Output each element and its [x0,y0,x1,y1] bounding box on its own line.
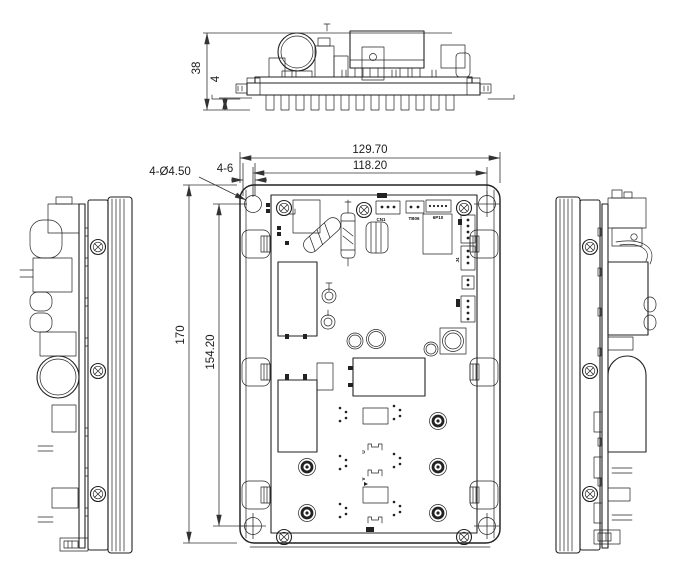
terminal-left-ribs [238,86,242,91]
pin-circles [321,283,336,329]
screw-top-left [277,201,292,216]
label-v: V [361,477,366,480]
component-rect-3 [317,363,333,390]
dim-text-154: 154.20 [205,334,217,369]
dim-text-118: 118.20 [353,160,387,172]
heatsink-fin-lines [112,199,124,551]
side-component-4 [52,405,76,432]
component-tower [315,46,334,77]
label-6p10: 6P10 [433,215,444,220]
standoff [430,505,447,522]
label-j4: J4 [455,257,460,263]
mount-hole-bottom-left [240,513,266,539]
frame-inner-walls [246,190,494,538]
label-tb06: TB06 [408,216,420,221]
component-rect-4 [363,408,388,424]
right-edge-connectors [456,215,475,322]
component-block [269,58,285,77]
screw-bottom-left [277,530,292,545]
right-side-view [556,190,656,553]
connector-tb06 [406,201,424,213]
dimension-annotations: 38 4 129.70 118.20 170 154.20 4-Ø4.50 4-… [149,33,500,543]
pad-dots [393,405,402,421]
ext-lines-38 [203,33,452,110]
pad-dots [339,455,348,471]
small-cap [456,53,470,77]
side-component-2 [608,337,633,350]
plate-screw [91,364,106,379]
callout-slot-text: 4-6 [217,163,234,175]
side-component-5 [52,488,78,508]
side-block-large [608,262,648,335]
capacitor-small [347,333,363,349]
label-u: U [361,450,366,453]
standoff [299,459,316,476]
component-leads [292,70,436,77]
fuse-diagonal [301,215,344,256]
left-side-view [20,197,132,553]
side-component [608,198,646,228]
relay-left [278,262,317,336]
screw-top-mid [357,203,372,218]
pcb-edge-side [602,204,608,548]
lead-wire [324,24,330,31]
side-bump [30,313,52,332]
baseplate [247,83,480,95]
component-rect-2 [423,214,452,254]
heatsink-fins [266,95,454,110]
plate-screw [583,487,598,502]
side-capacitor-dome [608,356,646,452]
terminal-right [480,84,491,93]
pad-dots [339,503,348,519]
mount-hole-bottom-right [474,513,500,539]
capacitor-profile [278,33,316,71]
side-component-2 [33,258,72,292]
baseplate-end-right [467,78,480,95]
component-rect-5 [363,487,388,503]
side-pins [38,517,53,522]
engineering-drawing: 38 4 129.70 118.20 170 154.20 4-Ø4.50 4-… [0,0,686,580]
pad-dots [339,407,348,423]
label-block-2 [366,527,374,532]
dim-text-38: 38 [191,62,203,75]
heatsink-fin-lines [560,199,572,551]
striped-cylinder [366,222,388,253]
component-tower-top [318,38,330,46]
mount-hole-top-right [474,191,500,217]
side-bump [644,315,656,330]
jumper-u [368,444,382,450]
side-component [48,204,79,233]
transformer-block [350,31,424,68]
side-capacitor-bump [30,220,62,258]
v-arrow-mark [364,482,368,486]
capacitor-square [440,328,466,354]
fuse-vertical-detail [341,200,355,266]
dim-text-4: 4 [210,75,222,82]
front-view: CN1 TB06 6P10 J4 [240,185,500,547]
side-bump [644,297,656,312]
dim-text-129: 129.70 [352,144,387,156]
jumper-w [368,517,382,523]
capacitor-profile-inner [281,36,313,68]
screw-top-right [457,201,472,216]
side-pins [20,270,33,277]
jumper-v [368,470,382,476]
plate-screw [583,240,598,255]
side-clips [242,230,498,509]
standoff [299,505,316,522]
side-component-cap [56,197,72,204]
pcb-outline [271,195,477,533]
relay-left-lower [278,380,317,452]
capacitor-small [367,330,386,349]
callout-hole-leader [199,177,246,200]
mount-hole-top-left [245,196,262,213]
to220-hole [370,54,377,61]
component-block-3 [441,45,465,68]
component-rect [293,200,320,233]
pad-dots [393,453,402,469]
side-component-3 [40,332,76,356]
capacitor-base [282,71,312,77]
label-block [377,193,387,198]
side-bump [30,292,52,311]
label-cn1: CN1 [376,217,385,222]
mount-tails [212,95,514,99]
cylinder-stripes [371,222,381,253]
callout-hole-text: 4-Ø4.50 [149,166,191,178]
top-profile-view [212,24,514,110]
standoff [430,459,447,476]
toroid-wires [616,241,652,264]
plate-screw [91,240,106,255]
to220-tab [362,47,384,80]
standoff [430,413,447,430]
side-pins [38,446,53,451]
terminal-right-ribs [484,86,488,91]
baseplate-end-left [247,78,260,95]
pcb-edge-side [79,204,85,548]
plate-screw [91,487,106,502]
dim-text-170: 170 [175,325,187,344]
side-capacitor-large [37,356,79,398]
side-pins [612,468,632,520]
plate-screw [583,364,598,379]
side-tab-hole [631,234,637,240]
drawing-canvas: 38 4 129.70 118.20 170 154.20 4-Ø4.50 4-… [0,0,686,580]
side-component-3 [608,488,630,501]
screw-bottom-right [457,530,472,545]
pad-dots [393,501,402,517]
relay-center [353,358,425,396]
